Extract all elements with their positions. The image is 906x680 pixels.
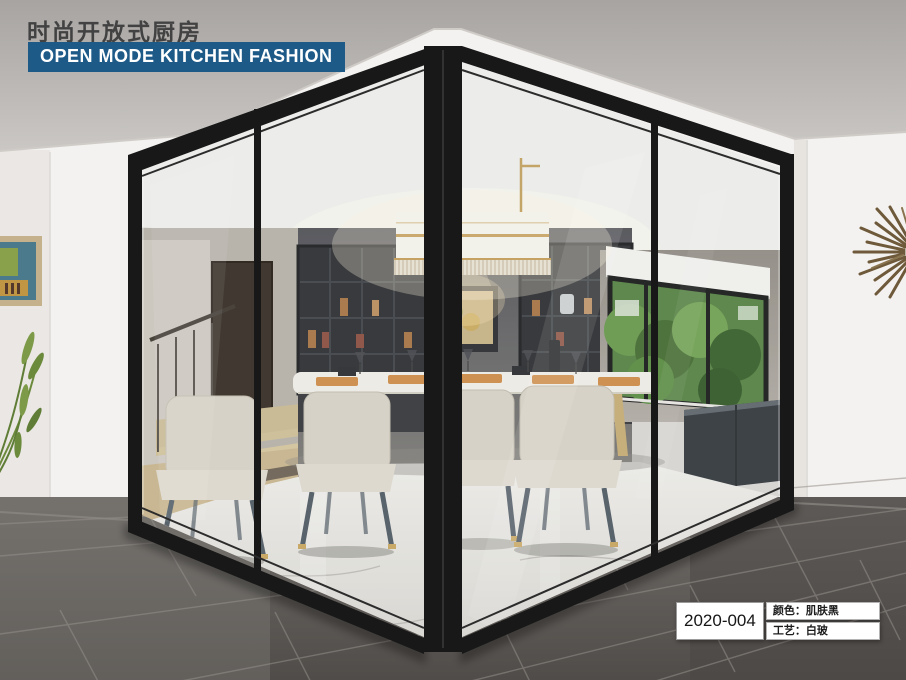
mullion-left	[254, 109, 261, 579]
catalog-page: 时尚开放式厨房 OPEN MODE KITCHEN FASHION 2020-0…	[0, 0, 906, 680]
right-wall-shade	[794, 140, 808, 503]
showroom-render	[0, 0, 906, 680]
model-number: 2020-004	[676, 602, 764, 640]
banner-strip: OPEN MODE KITCHEN FASHION	[28, 42, 345, 72]
wall-art	[0, 236, 42, 306]
left-wall-return	[0, 150, 50, 515]
product-spec-label: 2020-004 颜色：肌肤黑 工艺：白玻	[676, 602, 880, 640]
mullion-right	[651, 110, 658, 566]
right-post	[780, 154, 794, 510]
spec-craft-row: 工艺：白玻	[766, 622, 880, 640]
spec-rows: 颜色：肌肤黑 工艺：白玻	[766, 602, 880, 640]
spec-color-row: 颜色：肌肤黑	[766, 602, 880, 620]
left-post	[128, 155, 142, 531]
